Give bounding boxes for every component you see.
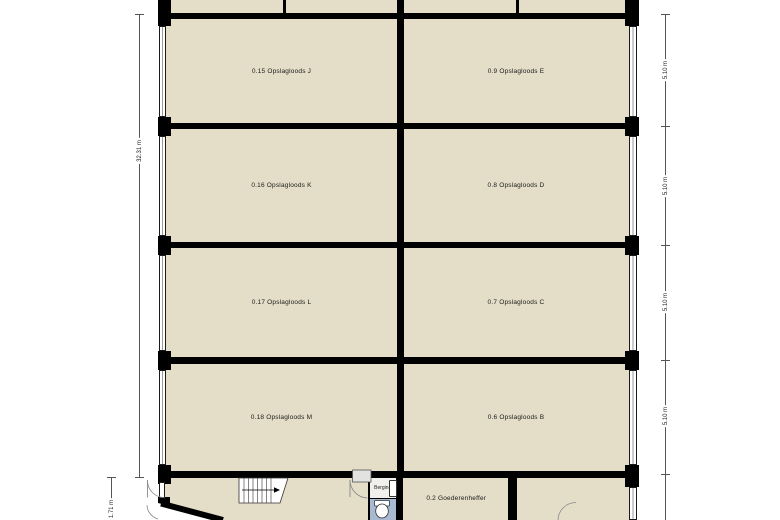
dimension-label-total-height: 32.31 m [137, 138, 143, 164]
dimension-label-row3: 5.10 m [663, 175, 669, 197]
dim-tick [661, 126, 670, 127]
dim-tick [661, 474, 670, 475]
dim-tick [135, 477, 144, 478]
dim-tick [661, 360, 670, 361]
dim-tick [107, 477, 116, 478]
wall-hatch [353, 470, 372, 482]
dimension-label-row5: 5.10 m [663, 405, 669, 427]
dimension-label-bottom-height: 1.71 m [109, 498, 115, 520]
door-arc-left [147, 480, 164, 498]
dimension-line-left [139, 14, 140, 477]
toilet-icon [375, 501, 390, 519]
door-arc-bottom-right [558, 503, 576, 520]
dimension-label-row2: 5.10 m [663, 59, 669, 81]
floor-plan: 0.15 Opslagloods J 0.9 Opslagloods E 0.1… [0, 0, 780, 520]
dim-tick [661, 14, 670, 15]
dim-tick [661, 245, 670, 246]
door-arc-berging [350, 480, 368, 498]
dim-tick [135, 14, 144, 15]
dimension-label-row4: 5.10 m [663, 291, 669, 313]
dimension-line-right [665, 14, 666, 520]
